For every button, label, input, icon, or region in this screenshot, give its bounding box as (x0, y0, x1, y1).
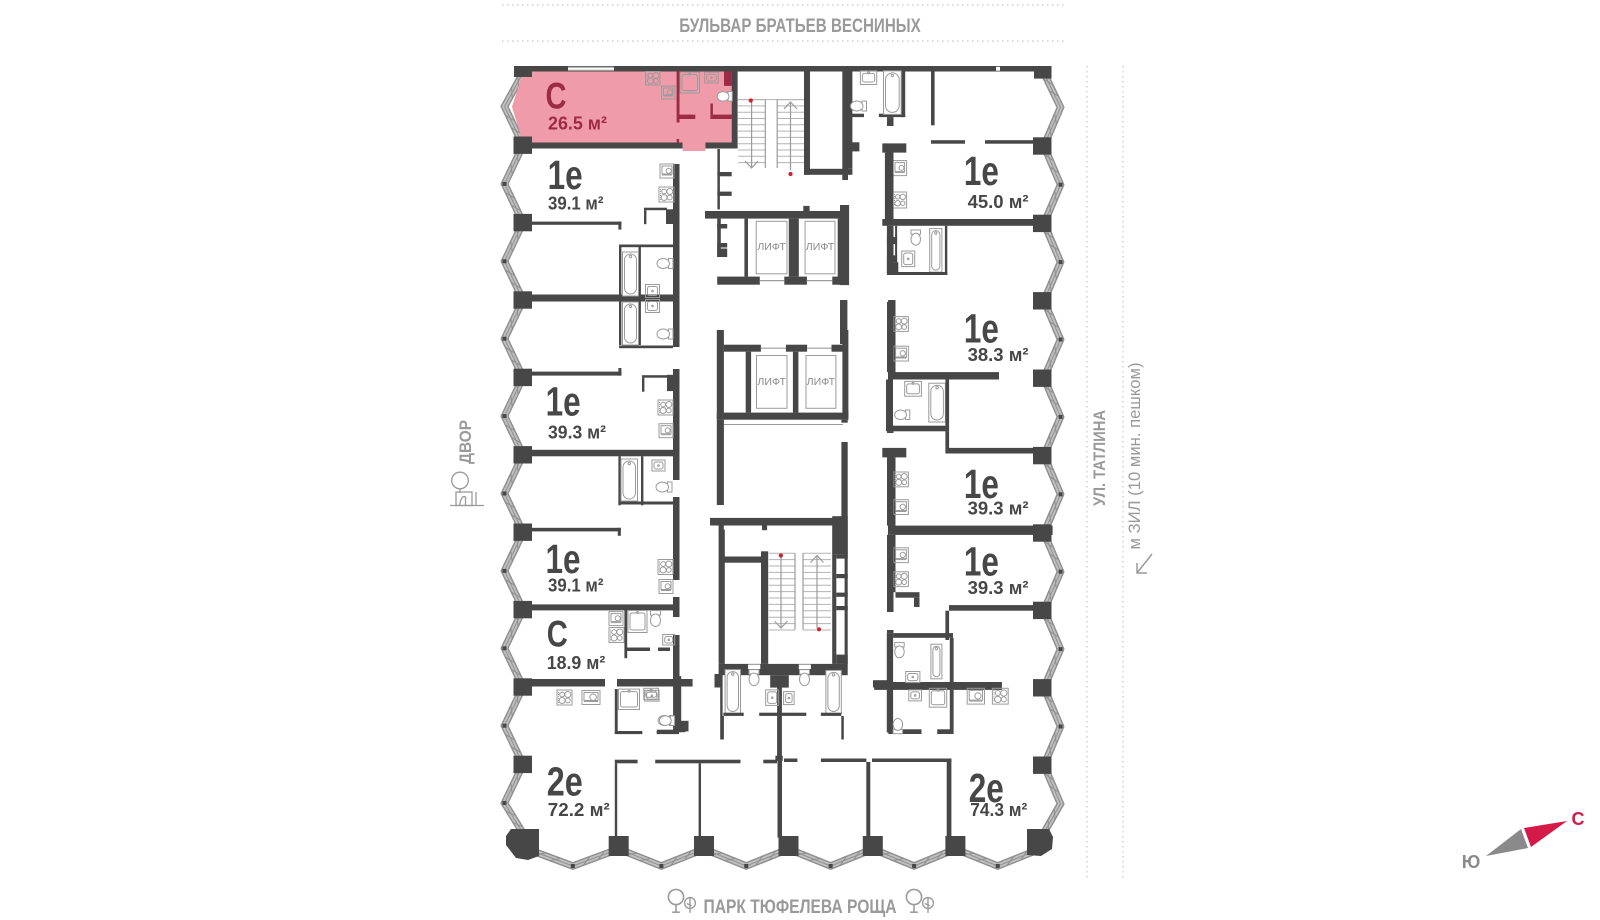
svg-text:Ю: Ю (1462, 852, 1481, 872)
svg-text:С: С (1572, 809, 1585, 829)
svg-text:1е: 1е (546, 379, 581, 425)
svg-text:1е: 1е (548, 152, 583, 198)
svg-text:74.3 м²: 74.3 м² (970, 799, 1027, 820)
svg-text:ЛИФТ: ЛИФТ (757, 376, 786, 388)
svg-text:45.0 м²: 45.0 м² (968, 191, 1029, 212)
svg-text:ПАРК ТЮФЕЛЕВА РОЩА: ПАРК ТЮФЕЛЕВА РОЩА (704, 897, 897, 918)
svg-text:ЛИФТ: ЛИФТ (806, 241, 835, 253)
svg-text:2е: 2е (547, 759, 583, 805)
svg-text:26.5 м²: 26.5 м² (548, 113, 607, 134)
svg-text:С: С (546, 76, 567, 117)
svg-text:39.3 м²: 39.3 м² (968, 577, 1029, 598)
svg-text:ДВОР: ДВОР (456, 420, 475, 464)
svg-text:39.3 м²: 39.3 м² (548, 421, 606, 442)
svg-text:39.3 м²: 39.3 м² (968, 498, 1029, 519)
svg-text:УЛ. ТАТЛИНА: УЛ. ТАТЛИНА (1090, 410, 1109, 506)
svg-text:м ЗИЛ (10 мин. пешком): м ЗИЛ (10 мин. пешком) (1125, 363, 1144, 550)
svg-text:ЛИФТ: ЛИФТ (807, 376, 836, 388)
svg-text:18.9 м²: 18.9 м² (547, 652, 606, 673)
svg-text:39.1 м²: 39.1 м² (548, 193, 604, 214)
svg-text:ЛИФТ: ЛИФТ (757, 241, 786, 253)
svg-text:38.3 м²: 38.3 м² (968, 344, 1029, 365)
svg-text:39.1 м²: 39.1 м² (548, 575, 604, 596)
svg-text:С: С (547, 613, 568, 654)
svg-text:72.2 м²: 72.2 м² (548, 799, 610, 820)
svg-text:БУЛЬВАР БРАТЬЕВ ВЕСНИНЫХ: БУЛЬВАР БРАТЬЕВ ВЕСНИНЫХ (679, 16, 921, 37)
svg-text:1е: 1е (964, 148, 999, 194)
